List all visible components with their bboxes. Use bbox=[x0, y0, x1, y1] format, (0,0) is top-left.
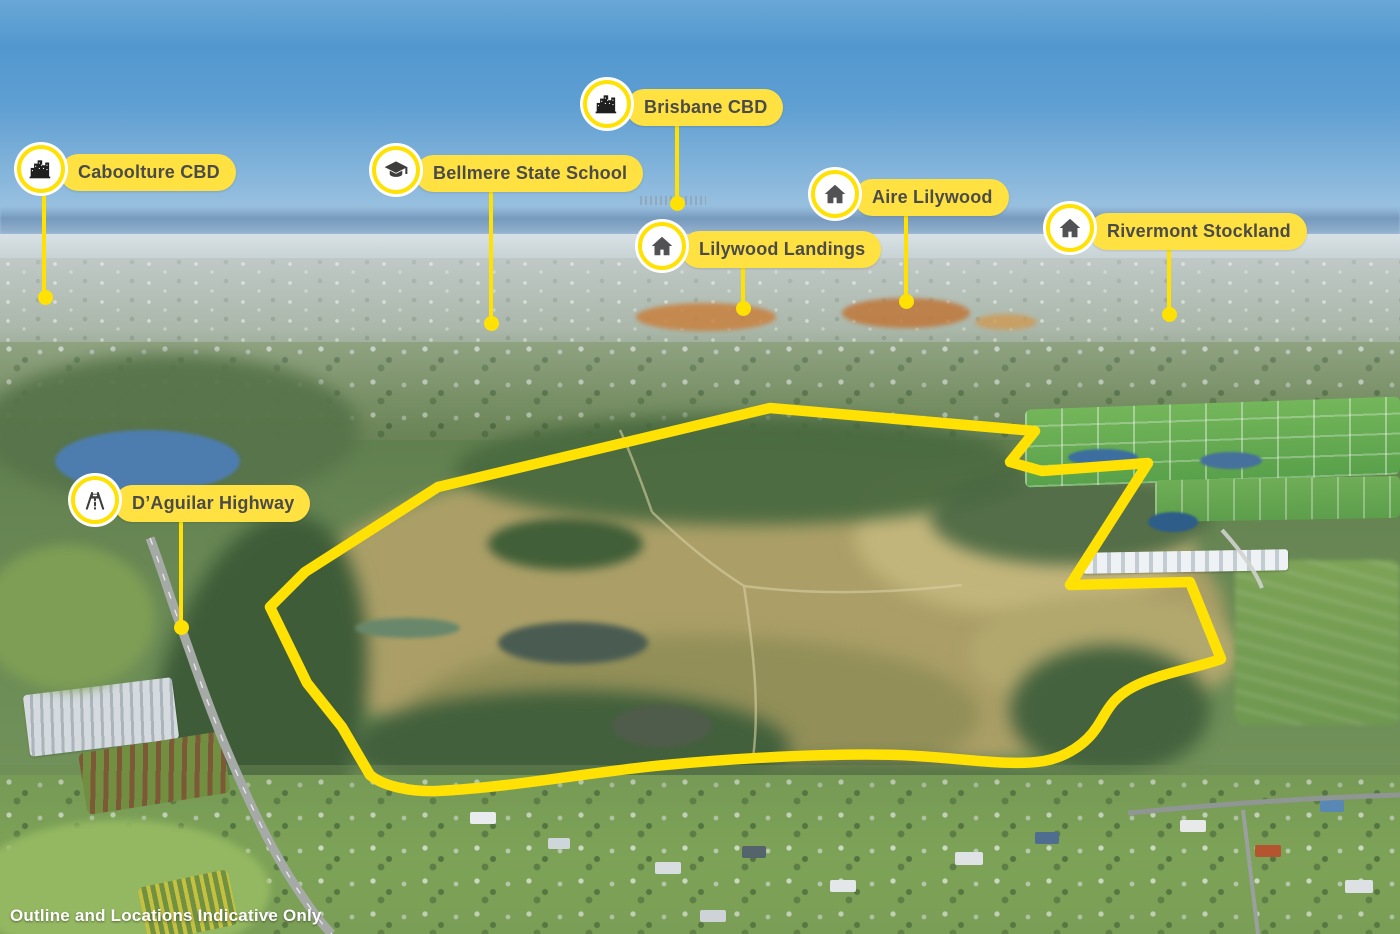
road bbox=[1243, 810, 1258, 934]
city-icon-badge bbox=[583, 80, 631, 128]
location-label-rivermont-stockland: Rivermont Stockland bbox=[1089, 213, 1307, 250]
house-icon-badge bbox=[811, 170, 859, 218]
house-icon bbox=[822, 181, 848, 207]
location-label-daguilar-highway: D’Aguilar Highway bbox=[114, 485, 310, 522]
location-dot bbox=[670, 196, 685, 211]
location-dot bbox=[38, 290, 53, 305]
location-label-brisbane-cbd: Brisbane CBD bbox=[626, 89, 783, 126]
location-dot bbox=[484, 316, 499, 331]
highway-icon bbox=[82, 487, 108, 513]
house-icon-badge bbox=[1046, 204, 1094, 252]
house-icon bbox=[1057, 215, 1083, 241]
highway-road bbox=[150, 538, 332, 934]
highway-centerline bbox=[150, 538, 332, 934]
house-icon bbox=[649, 233, 675, 259]
city-icon bbox=[594, 91, 620, 117]
location-label-bellmere-state-school: Bellmere State School bbox=[415, 155, 643, 192]
graduation-cap-icon bbox=[383, 157, 409, 183]
city-icon bbox=[28, 156, 54, 182]
road bbox=[1222, 530, 1262, 588]
highway-icon-badge bbox=[71, 476, 119, 524]
location-label-aire-lilywood: Aire Lilywood bbox=[854, 179, 1009, 216]
map-overlay bbox=[0, 0, 1400, 934]
location-label-lilywood-landings: Lilywood Landings bbox=[681, 231, 881, 268]
house-icon-badge bbox=[638, 222, 686, 270]
aerial-photo-stage: Caboolture CBD Bellmere State School Bri… bbox=[0, 0, 1400, 934]
disclaimer-text: Outline and Locations Indicative Only bbox=[10, 906, 322, 926]
leader-line bbox=[904, 208, 908, 301]
road bbox=[1128, 795, 1400, 813]
location-label-caboolture-cbd: Caboolture CBD bbox=[60, 154, 236, 191]
location-dot bbox=[736, 301, 751, 316]
location-dot bbox=[899, 294, 914, 309]
graduation-cap-icon-badge bbox=[372, 146, 420, 194]
leader-line bbox=[179, 514, 183, 627]
leader-line bbox=[675, 118, 679, 203]
farm-tracks bbox=[620, 430, 962, 758]
leader-line bbox=[1167, 242, 1171, 314]
location-dot bbox=[1162, 307, 1177, 322]
location-dot bbox=[174, 620, 189, 635]
city-icon-badge bbox=[17, 145, 65, 193]
leader-line bbox=[42, 180, 46, 297]
leader-line bbox=[489, 185, 493, 323]
